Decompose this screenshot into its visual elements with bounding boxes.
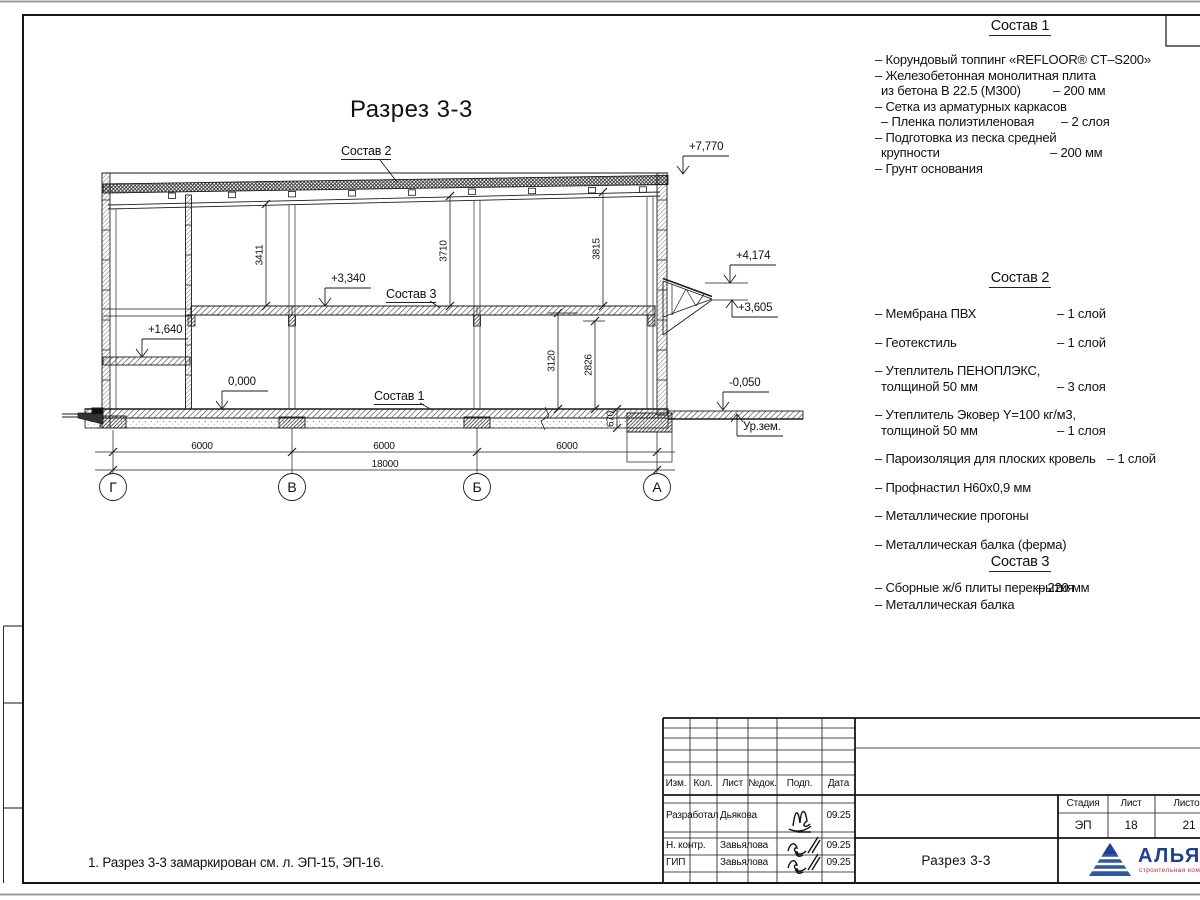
legend-item-line: – Геотекстиль– 1 слой — [875, 335, 957, 350]
title-block-column-header: №док. — [748, 778, 776, 789]
alliance-logo-icon — [1086, 843, 1134, 876]
signatures — [788, 811, 820, 873]
legend-item-line: – Пленка полиэтиленовая– 2 слоя — [881, 114, 1034, 129]
legend-heading-1: Состав 1 — [875, 18, 1165, 34]
elevation-shelf — [222, 391, 268, 409]
stage-value: ЭП — [1075, 818, 1092, 832]
ground-slab — [85, 409, 668, 418]
grid-axis-label: В — [278, 479, 306, 495]
dim-text-vertical: 3411 — [255, 245, 266, 266]
left-ramp — [62, 408, 103, 424]
title-block-column-header: Кол. — [694, 778, 713, 789]
elevation-shelf — [683, 156, 729, 174]
leader-label-sostav1: Состав 1 — [374, 389, 424, 405]
title-block-date: 09.25 — [826, 810, 850, 821]
grid-axis-label: А — [643, 479, 671, 495]
dim-text-vertical: 3815 — [592, 238, 603, 259]
legend-item-line: – Металлические прогоны — [875, 508, 1029, 523]
roof-package — [103, 176, 668, 194]
doc-title: Разрез 3-3 — [921, 853, 990, 868]
elevation-text: -0,050 — [729, 377, 760, 389]
dim-text-horizontal: 6000 — [373, 441, 394, 452]
right-wall — [657, 173, 667, 415]
elevation-text: +7,770 — [689, 141, 723, 153]
legend-item-line: – Корундовый топпинг «REFLOOR® CT–S200» — [875, 52, 1151, 67]
title-block-name: Завьялова — [720, 857, 768, 868]
elevation-text: +3,605 — [738, 302, 772, 314]
title-block-role: ГИП — [666, 857, 685, 868]
title-block-column-header: Дата — [828, 778, 849, 789]
legend-panel: Состав 1– Корундовый топпинг «REFLOOR® C… — [875, 0, 1195, 640]
legend-item-line: – Подготовка из песка средней — [875, 130, 1056, 145]
signature-zavyalova-2 — [788, 854, 820, 873]
legend-item-line: – Профнастил Н60х0,9 мм — [875, 480, 1031, 495]
title-block-name: Дьякова — [720, 810, 757, 821]
leader-label-sostav2: Состав 2 — [341, 144, 391, 160]
dim-text-vertical: 670 — [606, 410, 617, 426]
legend-item-line: – Утеплитель ПЕНОПЛЭКС, — [875, 363, 1040, 378]
grid-axis-label: Б — [463, 479, 491, 495]
signature-zavyalova-1 — [788, 837, 820, 856]
drawing-sheet: Разрез 3-3 Состав 2 Состав 3 Состав 1 1.… — [0, 0, 1200, 900]
elevation-shelf — [142, 339, 188, 357]
elevation-shelf — [325, 288, 371, 306]
legend-item-line: толщиной 50 мм– 1 слоя — [881, 423, 978, 438]
floor-slab-334 — [191, 306, 655, 315]
partition-wall — [186, 195, 192, 409]
right-apron — [668, 411, 803, 419]
canopy — [663, 279, 712, 336]
sheets-label: Листов — [1173, 798, 1200, 809]
dim-text-horizontal: 6000 — [191, 441, 212, 452]
legend-item-line: – Пароизоляция для плоских кровель– 1 сл… — [875, 451, 1096, 466]
elevation-text: +4,174 — [736, 250, 770, 262]
sheets-value: 21 — [1183, 818, 1196, 832]
drawing-title: Разрез 3-3 — [350, 96, 473, 124]
legend-item-line: – Мембрана ПВХ– 1 слой — [875, 306, 976, 321]
legend-item-line: – Металлическая балка — [875, 597, 1014, 612]
pit-outline — [627, 432, 672, 462]
slab-beams — [188, 315, 655, 326]
title-block-column-header: Изм. — [666, 778, 687, 789]
title-block-date: 09.25 — [826, 840, 850, 851]
leader-label-sostav3: Состав 3 — [386, 287, 436, 303]
logo-name: АЛЬЯНС — [1138, 845, 1200, 868]
elevation-text: +3,340 — [331, 273, 365, 285]
title-block-role: Разработал — [666, 810, 718, 821]
legend-item-line: из бетона В 22.5 (М300)– 200 мм — [881, 83, 1021, 98]
dim-text-vertical: 3710 — [439, 240, 450, 261]
legend-item-line: – Железобетонная монолитная плита — [875, 68, 1096, 83]
signature-dyakova — [789, 811, 811, 832]
legend-item-line: – Утеплитель Эковер Y=100 кг/м3, — [875, 407, 1076, 422]
mezzanine-slab — [103, 357, 190, 365]
elevation-shelf — [730, 265, 776, 283]
elevation-shelf — [723, 392, 769, 410]
legend-item-line: – Сетка из арматурных каркасов — [875, 99, 1067, 114]
legend-heading-3: Состав 3 — [875, 554, 1165, 570]
stage-label: Стадия — [1067, 798, 1100, 809]
legend-item-line: толщиной 50 мм– 3 слоя — [881, 379, 978, 394]
elevation-text: 0,000 — [228, 376, 256, 388]
elevation-text: Ур.зем. — [743, 421, 781, 433]
dim-text-vertical: 2826 — [584, 354, 595, 375]
section-drawing — [62, 160, 803, 474]
grid-bubbles — [100, 474, 671, 501]
title-block-role: Н. контр. — [666, 840, 705, 851]
legend-heading-2: Состав 2 — [875, 270, 1165, 286]
title-block-name: Завьялова — [720, 840, 768, 851]
legend-item-line: – Сборные ж/б плиты перекрытия– 220 мм — [875, 580, 1074, 595]
grid-axis-label: Г — [99, 479, 127, 495]
legend-item-line: – Грунт основания — [875, 161, 983, 176]
sheet-note: 1. Разрез 3-3 замаркирован см. л. ЭП-15,… — [88, 855, 384, 870]
title-block-column-header: Подп. — [787, 778, 813, 789]
logo-tagline: строительная компания — [1139, 867, 1200, 874]
sand-layer — [85, 418, 668, 428]
sheet-label: Лист — [1121, 798, 1142, 809]
elevation-text: +1,640 — [148, 324, 182, 336]
sheet-value: 18 — [1125, 818, 1138, 832]
dim-text-vertical: 3120 — [547, 350, 558, 371]
title-block-date: 09.25 — [826, 857, 850, 868]
dim-text-horizontal: 6000 — [556, 441, 577, 452]
legend-item-line: крупности– 200 мм — [881, 145, 940, 160]
dim-text-horizontal: 18000 — [372, 459, 399, 470]
legend-item-line: – Металлическая балка (ферма) — [875, 537, 1066, 552]
left-wall — [102, 173, 110, 428]
title-block-column-header: Лист — [722, 778, 743, 789]
